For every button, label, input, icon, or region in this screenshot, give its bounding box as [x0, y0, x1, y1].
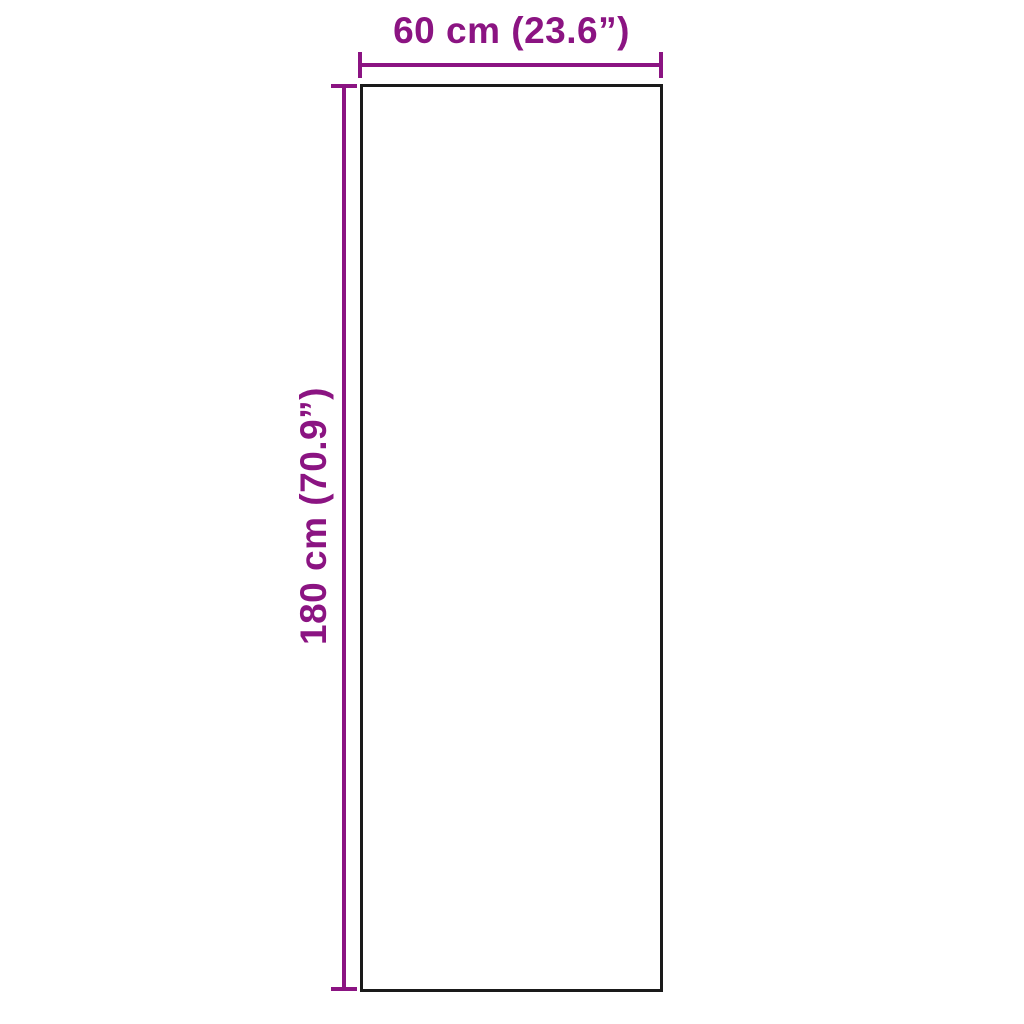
width-dimension-label: 60 cm (23.6”) — [360, 10, 663, 52]
dimension-diagram: 60 cm (23.6”) 180 cm (70.9”) — [0, 0, 1024, 1024]
height-dimension-tick-bottom — [331, 987, 357, 991]
height-dimension-tick-top — [331, 84, 357, 88]
product-outline-rect — [360, 84, 663, 992]
width-dimension-line — [360, 63, 663, 67]
width-dimension-tick-right — [659, 52, 663, 78]
height-dimension-label: 180 cm (70.9”) — [293, 387, 335, 645]
height-dimension-line — [342, 85, 346, 991]
width-dimension-tick-left — [358, 52, 362, 78]
